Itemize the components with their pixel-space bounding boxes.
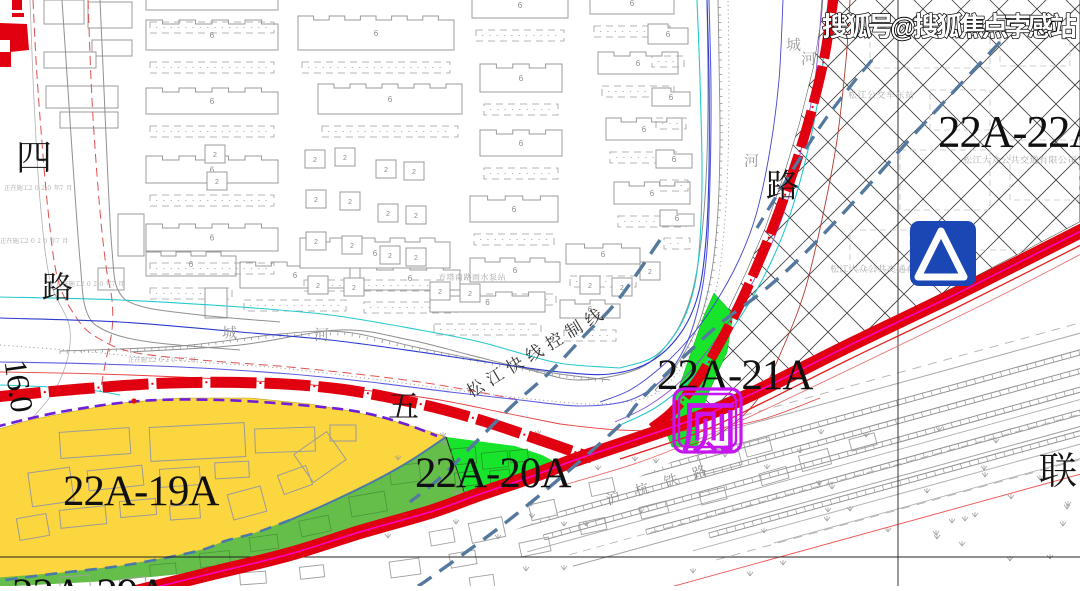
svg-text:2: 2: [588, 283, 592, 290]
svg-text:6: 6: [210, 97, 215, 106]
svg-text:6: 6: [373, 249, 378, 258]
svg-text:6: 6: [518, 1, 523, 10]
svg-text:6: 6: [642, 125, 647, 134]
svg-text:6: 6: [630, 0, 635, 8]
svg-text:2: 2: [648, 269, 652, 276]
svg-text:2: 2: [414, 255, 418, 262]
svg-text:6: 6: [210, 234, 215, 243]
svg-text:6: 6: [519, 74, 524, 83]
svg-text:22A-29A: 22A-29A: [12, 571, 168, 586]
svg-text:2: 2: [412, 169, 416, 176]
svg-text:2: 2: [386, 211, 390, 218]
svg-text:6: 6: [408, 274, 413, 283]
svg-text:6: 6: [485, 298, 490, 307]
svg-text:2: 2: [350, 243, 354, 250]
svg-text:6: 6: [669, 93, 674, 102]
svg-text:2: 2: [352, 285, 356, 292]
svg-text:6: 6: [512, 205, 517, 214]
svg-text:2: 2: [213, 152, 217, 159]
svg-text:2: 2: [348, 199, 352, 206]
svg-text:22A-20A: 22A-20A: [415, 450, 571, 497]
svg-text:@: @: [890, 12, 915, 42]
svg-text:6: 6: [650, 189, 655, 198]
svg-text:2: 2: [414, 213, 418, 220]
svg-text:2: 2: [388, 253, 392, 260]
svg-text:6: 6: [672, 155, 677, 164]
svg-text:6: 6: [666, 30, 671, 39]
svg-text:6: 6: [388, 95, 393, 104]
svg-text:16.0: 16.0: [0, 357, 41, 414]
svg-text:6: 6: [210, 0, 215, 2]
svg-text:22A-21A: 22A-21A: [657, 352, 813, 399]
svg-text:6: 6: [636, 59, 641, 68]
svg-text:6: 6: [513, 266, 518, 275]
svg-text:6: 6: [210, 31, 215, 40]
svg-text:6: 6: [675, 214, 680, 223]
svg-text:2: 2: [316, 283, 320, 290]
svg-text:6: 6: [189, 260, 194, 269]
svg-text:2: 2: [314, 239, 318, 246]
svg-text:22A-22A: 22A-22A: [938, 107, 1080, 157]
svg-text:2: 2: [343, 155, 347, 162]
svg-text:6: 6: [293, 271, 298, 280]
svg-text:6: 6: [374, 29, 379, 38]
svg-text:2: 2: [314, 197, 318, 204]
svg-text:2: 2: [468, 291, 472, 298]
svg-text:6: 6: [601, 250, 606, 259]
svg-text:2: 2: [384, 167, 388, 174]
svg-text:22A-19A: 22A-19A: [63, 468, 219, 515]
svg-text:6: 6: [519, 139, 524, 148]
svg-text:2: 2: [313, 157, 317, 164]
svg-text:2: 2: [215, 179, 219, 186]
svg-text:2: 2: [438, 289, 442, 296]
